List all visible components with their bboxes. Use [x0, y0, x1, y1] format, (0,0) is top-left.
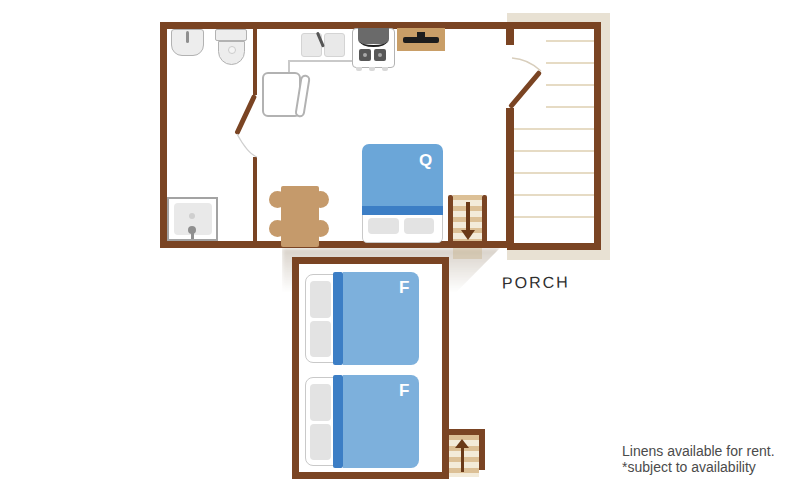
stove-pot-handle — [360, 36, 387, 47]
porch-door-swing-arc — [512, 58, 541, 71]
queen-bed-label: Q — [419, 152, 432, 169]
stove-foot-2 — [369, 67, 375, 71]
shower-head-stem — [191, 232, 194, 239]
linens-note: Linens available for rent. *subject to a… — [622, 443, 775, 475]
toilet-flush-button — [228, 46, 236, 54]
queen-bed-stripe — [362, 206, 443, 215]
up-arrow-icon — [461, 446, 465, 472]
linens-note-line1: Linens available for rent. — [622, 443, 775, 459]
linens-note-line2: *subject to availability — [622, 459, 775, 475]
stove-foot-1 — [356, 67, 362, 71]
full-bed-2-stripe — [333, 375, 343, 468]
down-arrow-icon — [466, 202, 470, 231]
full-bed-2-pillow-top — [310, 384, 331, 421]
full-bed-1-label: F — [399, 279, 409, 296]
dining-table — [281, 186, 319, 247]
full-bed-1-pillow-bottom — [310, 321, 331, 357]
main-stairs-rail-left — [448, 195, 453, 241]
full-bed-1-pillow-top — [310, 281, 331, 318]
lower-stairs-right-wall — [479, 429, 485, 470]
floor-plan: Q F F PORCH Linens available for rent. *… — [0, 0, 800, 500]
queen-bed-pillow-left — [368, 218, 399, 234]
porch-label: PORCH — [502, 273, 570, 292]
down-arrow-head — [461, 230, 475, 240]
kitchen-sink-basin-right — [324, 33, 345, 57]
shower-drain — [189, 213, 195, 219]
bathroom-door-swing-arc — [237, 134, 257, 157]
stove-burner-right-dot — [378, 53, 382, 57]
bathroom-sink-faucet-icon — [186, 31, 189, 43]
full-bed-1-stripe — [333, 272, 343, 365]
toilet-tank — [215, 29, 247, 41]
stove-burner-left-dot — [363, 53, 367, 57]
queen-bed-pillow-right — [404, 218, 434, 234]
main-stairs-rail-right — [482, 195, 487, 241]
full-bed-2-label: F — [399, 382, 409, 399]
tv-screen — [403, 37, 439, 43]
full-bed-2-pillow-bottom — [310, 424, 331, 460]
stove-foot-3 — [382, 67, 388, 71]
kitchen-counter-edge-h — [288, 60, 353, 62]
